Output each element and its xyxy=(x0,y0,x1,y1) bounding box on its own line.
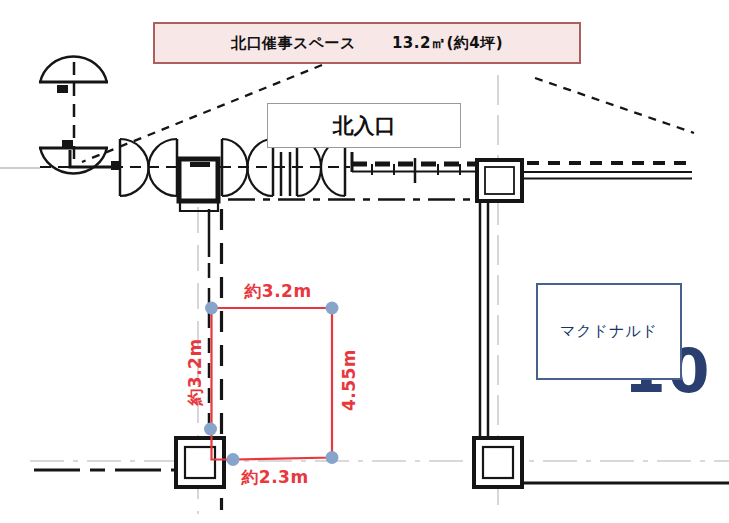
tenant-label-box: マクドナルド xyxy=(536,283,682,380)
measure-label-top: 約3.2m xyxy=(244,280,311,303)
floor-plan-page: 10 マクドナルド 北入口 北口催事スペース 13.2㎡(約4坪) 約3.2m … xyxy=(0,0,729,523)
banner-area: 13.2㎡(約4坪) xyxy=(392,34,503,53)
north-entrance-label: 北入口 xyxy=(333,112,396,140)
measure-label-left: 約3.2m xyxy=(184,338,207,405)
floor-plan-drawing xyxy=(0,0,729,523)
measure-label-right: 4.55m xyxy=(339,349,359,411)
north-entrance-label-box: 北入口 xyxy=(267,103,461,148)
title-banner: 北口催事スペース 13.2㎡(約4坪) xyxy=(153,22,581,64)
tenant-label: マクドナルド xyxy=(560,322,658,341)
columns xyxy=(176,159,522,487)
measure-label-bottom: 約2.3m xyxy=(241,466,308,489)
banner-title: 北口催事スペース xyxy=(231,34,356,53)
measure-outline xyxy=(212,308,333,460)
